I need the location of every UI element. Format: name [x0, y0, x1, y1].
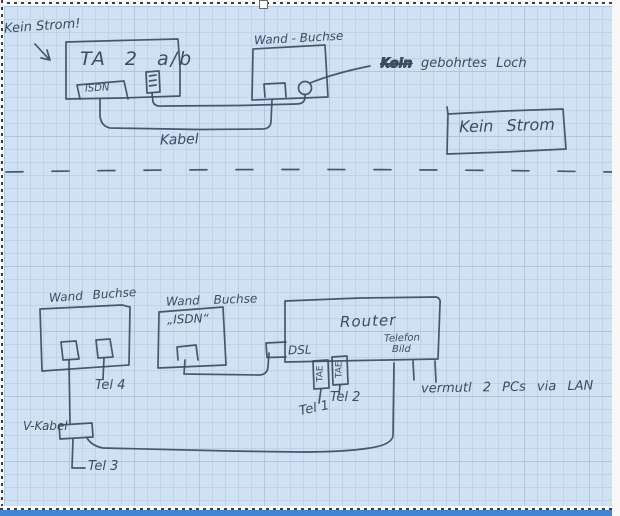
telefon-port-label-line2: Bild	[392, 345, 411, 356]
hole-note-scribbled-word: Kein	[380, 56, 412, 71]
no-power-box-label: Kein Strom	[452, 117, 562, 137]
tel2-label: Tel 2	[330, 391, 360, 405]
isdn-wall-socket-label: Wand Buchse	[166, 292, 258, 308]
bottom-edge-bar	[0, 510, 612, 516]
window-right-edge	[612, 0, 620, 516]
dsl-port-label: DSL	[288, 344, 312, 357]
isdn-wall-socket-sublabel: „ISDN“	[167, 312, 209, 326]
cable-label: Kabel	[160, 132, 199, 148]
selection-border-left	[0, 0, 4, 510]
tae-port1-label: TAE	[316, 360, 325, 388]
router-title: Router	[340, 313, 397, 331]
selection-border-top	[0, 0, 620, 6]
ta-box-title: TA 2 a/b	[80, 50, 193, 70]
lan-note: vermutl 2 PCs via LAN	[421, 379, 593, 396]
isdn-port-label: ISDN	[85, 83, 110, 95]
screenshot-window: Kein Strom! TA 2 a/b ISDN Wand - Buchse …	[0, 0, 620, 516]
drawing-canvas[interactable]	[4, 6, 612, 509]
v-cable-label: V-Kabel	[23, 420, 68, 433]
tae-port2-label: TAE	[335, 356, 344, 384]
hole-note-text: gebohrtes Loch	[421, 56, 527, 71]
hole-note: Kein gebohrtes Loch	[380, 57, 527, 71]
tel3-label: Tel 3	[88, 460, 118, 474]
tel4-label: Tel 4	[95, 379, 125, 393]
selection-handle[interactable]	[259, 0, 268, 9]
